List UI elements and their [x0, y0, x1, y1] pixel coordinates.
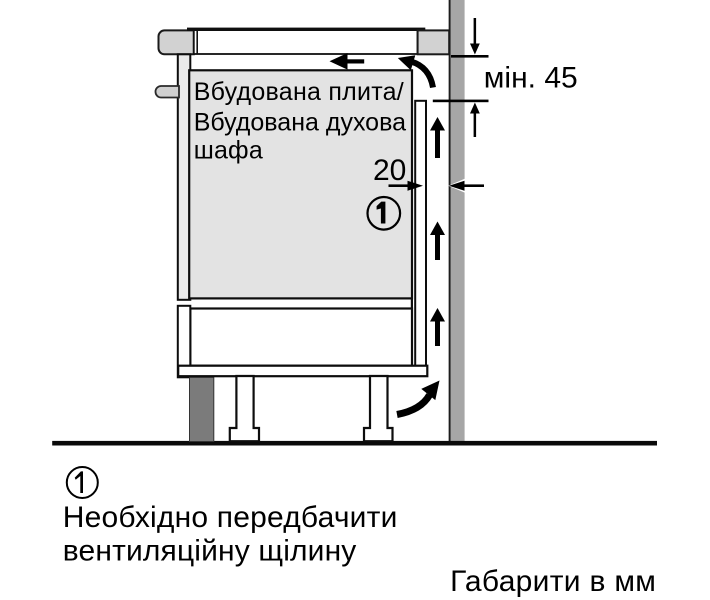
svg-text:шафа: шафа	[194, 137, 263, 165]
svg-text:вентиляційну щілину: вентиляційну щілину	[63, 535, 357, 568]
svg-text:Вбудована духова: Вбудована духова	[194, 109, 406, 137]
svg-text:Вбудована плита/: Вбудована плита/	[194, 78, 404, 106]
svg-text:Необхідно передбачити: Необхідно передбачити	[63, 501, 398, 534]
svg-text:Габарити в мм: Габарити в мм	[450, 565, 656, 598]
svg-text:мін. 45: мін. 45	[484, 62, 578, 95]
svg-text:20: 20	[373, 154, 406, 187]
